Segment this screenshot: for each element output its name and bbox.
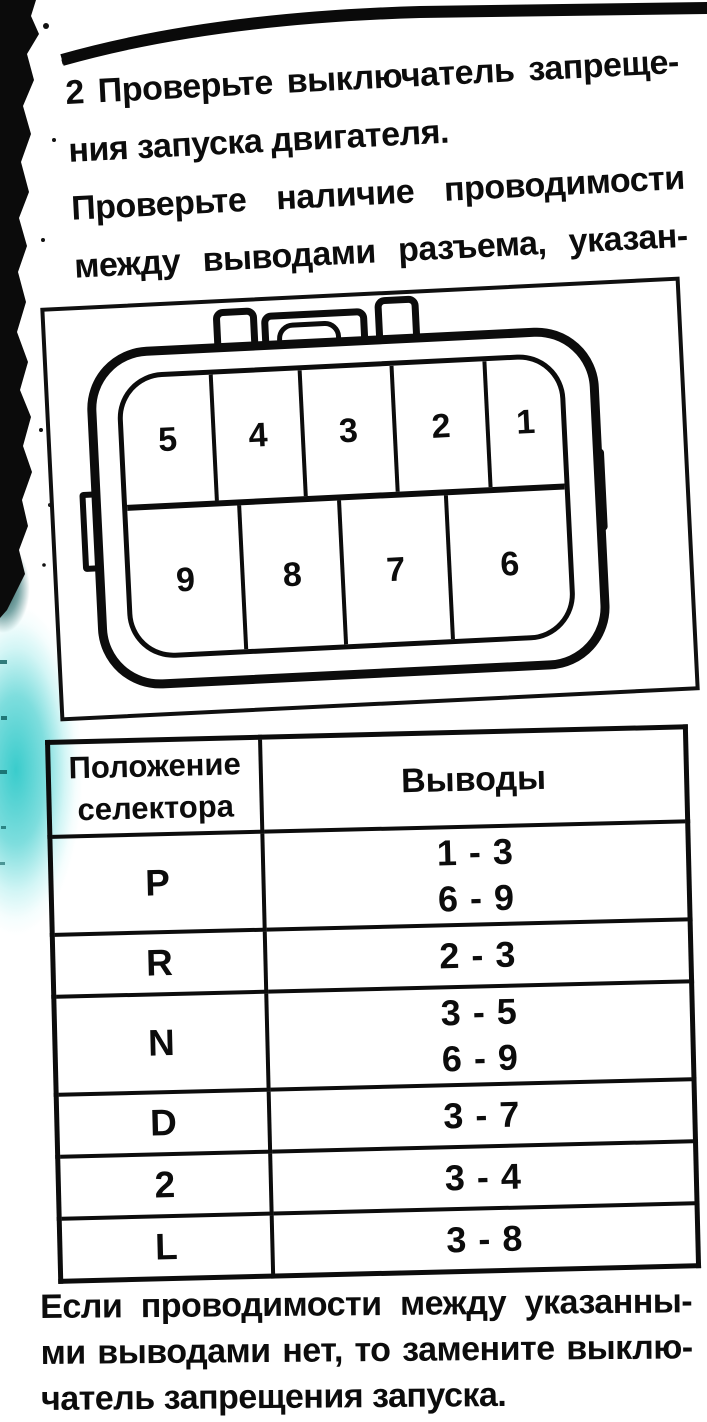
pin-cell: 7 (341, 495, 455, 644)
connector-pin-row-top: 5 4 3 2 1 (121, 358, 565, 511)
continuity-table: Положение селектора Выводы P 1 - 3 6 - 9… (45, 724, 701, 1284)
selector-position: R (52, 930, 266, 997)
selector-position: D (56, 1090, 270, 1157)
pins-value: 3 - 5 6 - 9 (266, 981, 694, 1089)
pin-cell: 9 (127, 505, 247, 654)
connector-outer-shell: 5 4 3 2 1 9 8 7 6 (84, 325, 612, 692)
selector-position: N (54, 992, 269, 1095)
header-pins: Выводы (260, 727, 688, 832)
outro-line: Если проводимости между указанны- (40, 1278, 692, 1330)
table-header-row: Положение селектора Выводы (48, 727, 688, 837)
selector-position: L (59, 1214, 273, 1282)
pin-cell: 3 (302, 366, 400, 496)
continuity-table-wrapper: Положение селектора Выводы P 1 - 3 6 - 9… (45, 724, 701, 1284)
table-row: N 3 - 5 6 - 9 (54, 981, 694, 1095)
header-selector-position: Положение селектора (48, 737, 263, 837)
selector-position: P (50, 832, 265, 935)
connector-pin-block: 5 4 3 2 1 9 8 7 6 (116, 352, 577, 660)
pins-value: 3 - 4 (270, 1141, 697, 1213)
pins-value: 1 - 3 6 - 9 (262, 821, 690, 929)
pins-value: 2 - 3 (265, 919, 692, 991)
pin-cell: 4 (212, 370, 307, 500)
pins-value: 3 - 7 (269, 1079, 696, 1151)
pin-cell: 6 (448, 489, 572, 639)
outro-line: чатель запрещения запуска. (41, 1370, 693, 1422)
scanned-manual-page: { "document": { "intro": { "lines": [ "2… (0, 0, 707, 1413)
outro-paragraph: Если проводимости между указанны- ми выв… (40, 1278, 693, 1422)
pin-cell: 2 (393, 361, 493, 491)
selector-position: 2 (58, 1152, 272, 1219)
connector-pin-row-bottom: 9 8 7 6 (127, 489, 572, 654)
pin-cell: 5 (121, 375, 219, 505)
pin-cell: 8 (241, 500, 348, 649)
outro-line: ми выводами нет, то замените выклю- (40, 1324, 692, 1376)
pin-cell: 1 (487, 358, 565, 487)
pins-value: 3 - 8 (272, 1203, 699, 1276)
table-row: P 1 - 3 6 - 9 (50, 821, 690, 935)
connector-figure-frame: 5 4 3 2 1 9 8 7 6 (40, 277, 699, 722)
